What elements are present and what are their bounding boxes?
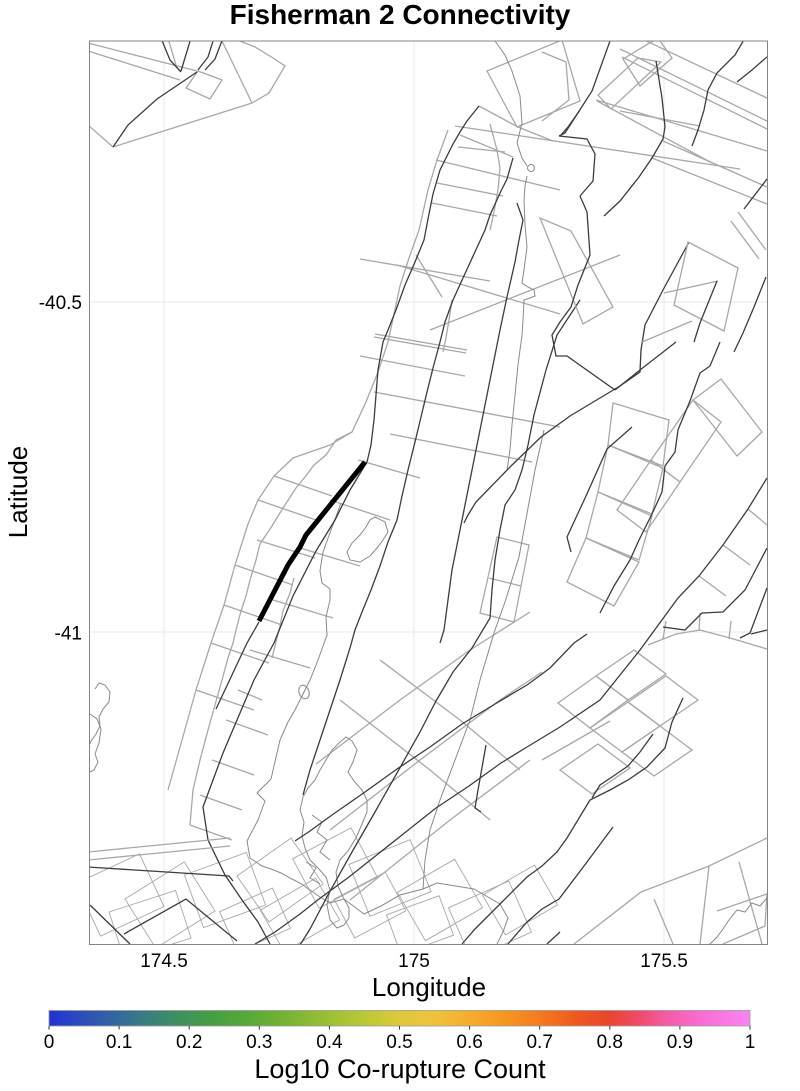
svg-text:Latitude: Latitude — [3, 446, 33, 539]
svg-text:0.7: 0.7 — [526, 1032, 552, 1053]
svg-text:0.9: 0.9 — [667, 1032, 693, 1053]
svg-text:Log10 Co-rupture Count: Log10 Co-rupture Count — [254, 1054, 546, 1084]
svg-text:0.3: 0.3 — [246, 1032, 272, 1053]
svg-text:0.4: 0.4 — [316, 1032, 343, 1053]
svg-text:175: 175 — [398, 951, 430, 972]
svg-text:-40.5: -40.5 — [39, 293, 82, 314]
svg-text:1: 1 — [745, 1032, 756, 1053]
svg-text:Fisherman 2 Connectivity: Fisherman 2 Connectivity — [230, 0, 571, 30]
svg-text:0.5: 0.5 — [386, 1032, 412, 1053]
svg-text:0: 0 — [44, 1032, 55, 1053]
svg-text:0.2: 0.2 — [176, 1032, 202, 1053]
svg-text:175.5: 175.5 — [640, 951, 688, 972]
svg-text:0.8: 0.8 — [597, 1032, 623, 1053]
svg-text:174.5: 174.5 — [140, 951, 188, 972]
svg-text:Longitude: Longitude — [372, 972, 486, 1002]
svg-text:0.6: 0.6 — [456, 1032, 482, 1053]
svg-text:0.1: 0.1 — [106, 1032, 132, 1053]
svg-text:-41: -41 — [55, 624, 82, 645]
